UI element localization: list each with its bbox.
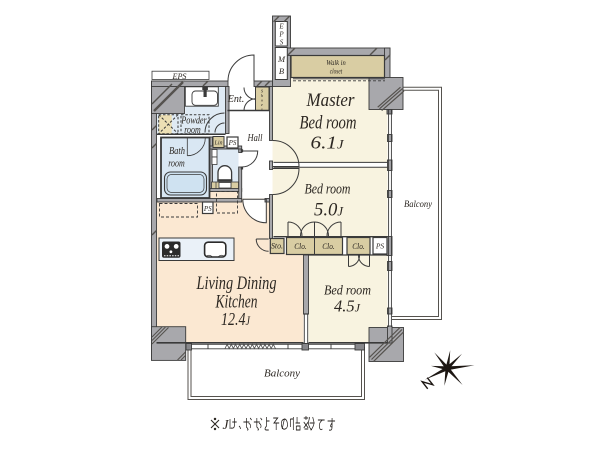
svg-text:Sto.: Sto.	[271, 242, 283, 251]
svg-text:B: B	[279, 66, 284, 76]
svg-text:Clo.: Clo.	[322, 241, 335, 251]
svg-text:J: J	[223, 417, 230, 432]
svg-text:Balcony: Balcony	[404, 199, 432, 209]
svg-text:E: E	[278, 23, 284, 31]
svg-text:PS: PS	[203, 205, 212, 213]
svg-text:5.0J: 5.0J	[314, 200, 344, 221]
svg-text:closet: closet	[330, 69, 343, 76]
svg-text:Lin: Lin	[213, 141, 222, 147]
svg-text:Bath: Bath	[169, 146, 185, 157]
svg-text:S: S	[280, 39, 284, 47]
svg-text:Bed room: Bed room	[305, 182, 351, 198]
svg-text:room: room	[168, 159, 185, 170]
svg-text:P: P	[278, 31, 284, 39]
svg-text:M: M	[277, 54, 286, 64]
svg-text:EPS: EPS	[171, 72, 186, 81]
svg-text:Ent.: Ent.	[227, 94, 244, 105]
svg-text:Clo.: Clo.	[352, 241, 365, 251]
svg-text:PS: PS	[375, 242, 385, 251]
svg-text:Walk in: Walk in	[326, 60, 346, 67]
svg-text:Balcony: Balcony	[264, 369, 301, 380]
svg-text:Hall: Hall	[247, 133, 263, 144]
svg-text:Clo.: Clo.	[294, 241, 307, 251]
svg-text:Master: Master	[306, 91, 356, 111]
svg-text:PS: PS	[228, 139, 237, 147]
svg-text:Bed room: Bed room	[300, 114, 357, 134]
svg-text:room: room	[184, 125, 201, 136]
